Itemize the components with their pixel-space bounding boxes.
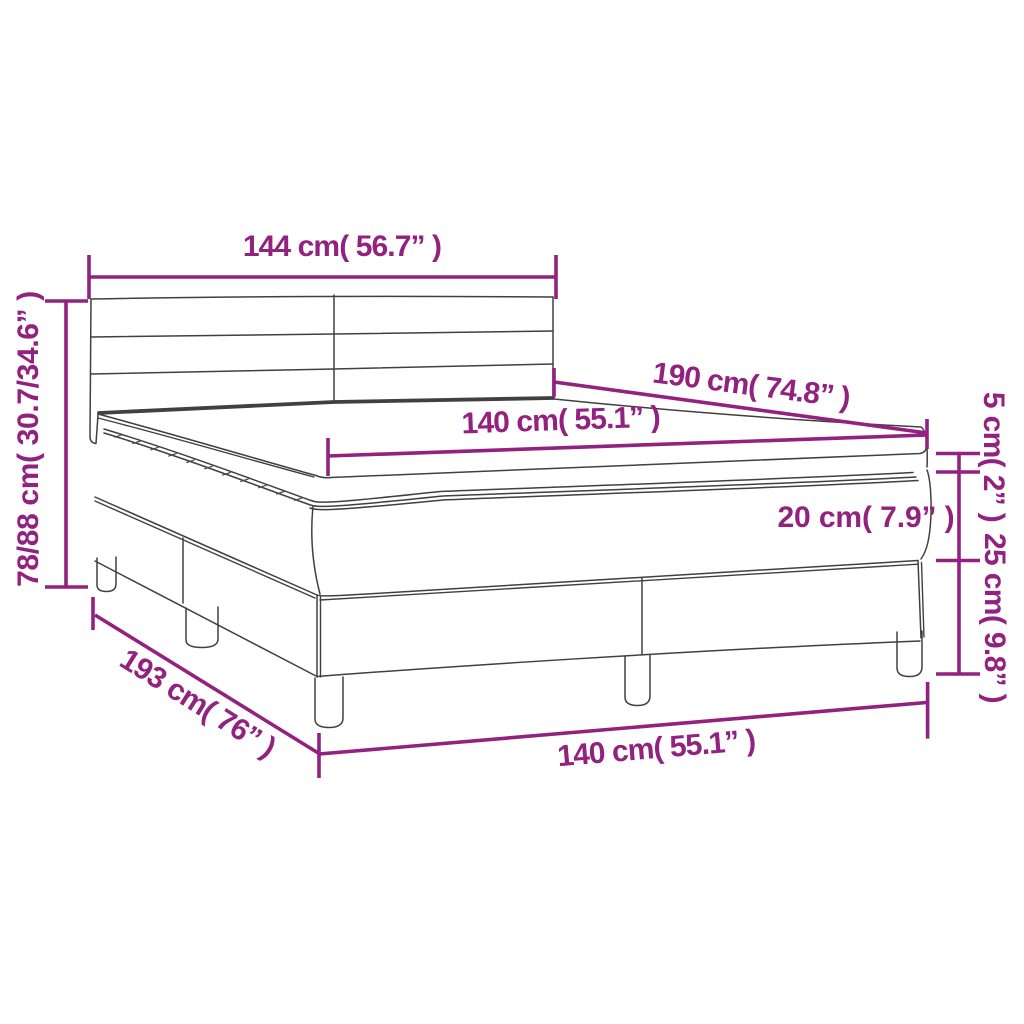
svg-text:78/88 cm( 30.7/34.6” ): 78/88 cm( 30.7/34.6” ) xyxy=(12,291,45,587)
svg-text:144 cm( 56.7” ): 144 cm( 56.7” ) xyxy=(243,230,441,263)
svg-text:140 cm( 55.1” ): 140 cm( 55.1” ) xyxy=(461,401,660,441)
svg-text:5 cm( 2” ): 5 cm( 2” ) xyxy=(977,392,1010,522)
svg-text:20 cm( 7.9” ): 20 cm( 7.9” ) xyxy=(777,501,954,534)
svg-text:25 cm( 9.8” ): 25 cm( 9.8” ) xyxy=(978,533,1011,703)
